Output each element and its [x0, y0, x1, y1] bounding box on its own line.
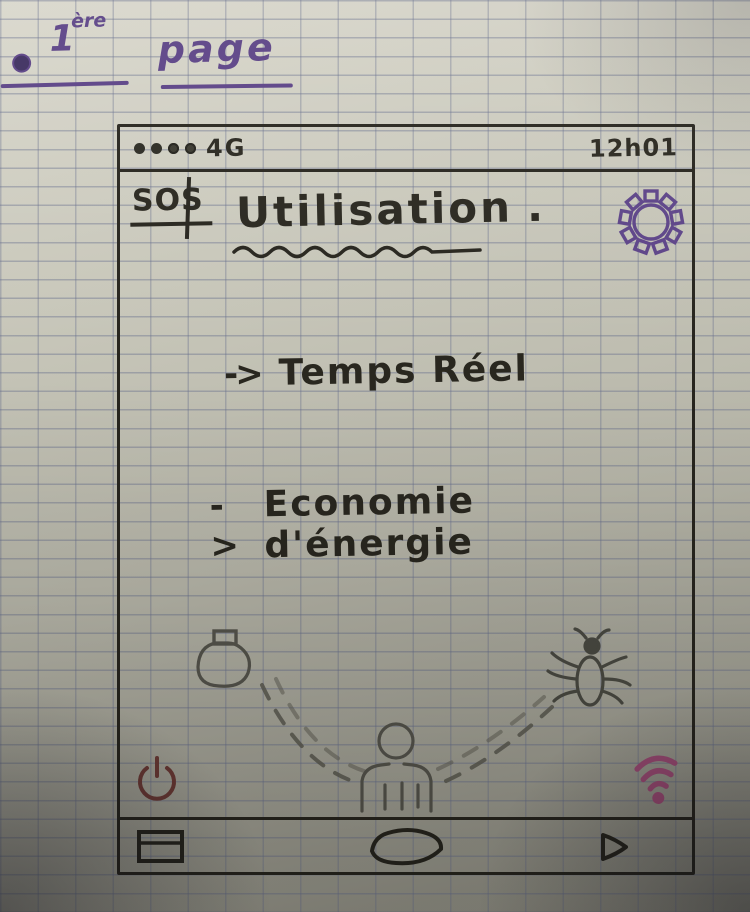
sos-button: SOS [130, 182, 212, 226]
network-label: 4G [206, 134, 247, 163]
bullet-marker [14, 55, 29, 70]
illustration-scene [178, 623, 642, 823]
clock-label: 12h01 [589, 133, 678, 163]
ordinal-suffix: ère [71, 9, 107, 32]
back-icon [594, 829, 636, 865]
underline [161, 83, 293, 89]
phone-frame: 4G 12h01 SOS Utilisation. [117, 124, 695, 875]
diffuser-icon [198, 631, 249, 686]
menu-item-economie-energie: -> Economie d'énergie [209, 477, 692, 567]
home-icon [365, 824, 449, 868]
power-icon [130, 753, 184, 811]
arrow-icon: -> [224, 354, 261, 395]
page-word: page [157, 25, 276, 72]
signal-dots-icon [134, 143, 196, 154]
wavy-underline [232, 243, 484, 259]
recents-icon [134, 827, 188, 867]
mosquito-icon [548, 629, 630, 705]
person-icon [362, 724, 431, 811]
dashed-arc-right [438, 697, 552, 781]
gear-icon [612, 183, 690, 261]
dashed-arc-left [262, 679, 364, 783]
notebook-photo: 1 ère page 4G 12h01 SOS Utilisation. [0, 0, 750, 912]
underline [1, 81, 129, 88]
page-annotation: 1 ère page [0, 2, 321, 110]
page-title: Utilisation. [236, 182, 547, 237]
status-bar: 4G 12h01 [120, 127, 692, 172]
wifi-icon [627, 742, 687, 809]
nav-bar [120, 817, 692, 872]
menu-item-temps-reel: -> Temps Réel [224, 348, 530, 394]
arrow-icon: -> [209, 486, 246, 567]
